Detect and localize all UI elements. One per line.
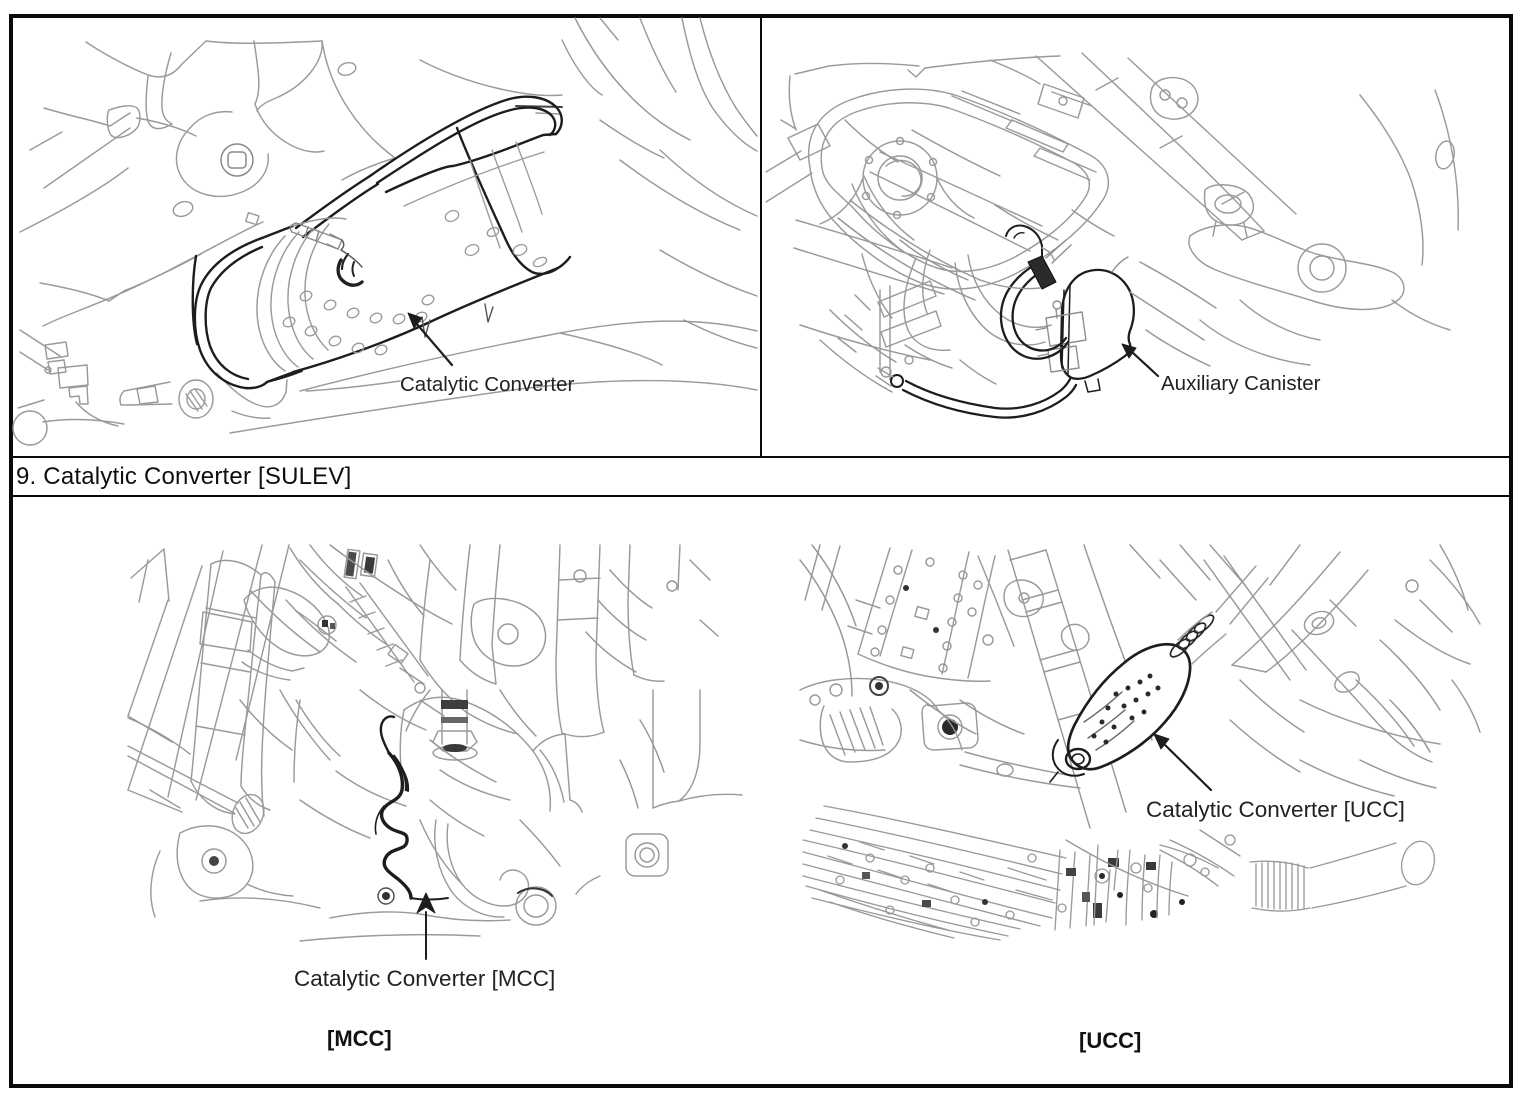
svg-text:Catalytic Converter [UCC]: Catalytic Converter [UCC] [1146,797,1405,822]
svg-text:Auxiliary Canister: Auxiliary Canister [1161,372,1321,395]
svg-text:[UCC]: [UCC] [1079,1028,1141,1053]
svg-text:[MCC]: [MCC] [327,1026,392,1051]
svg-text:Catalytic Converter [MCC]: Catalytic Converter [MCC] [294,966,555,991]
svg-text:Catalytic Converter: Catalytic Converter [400,373,574,396]
